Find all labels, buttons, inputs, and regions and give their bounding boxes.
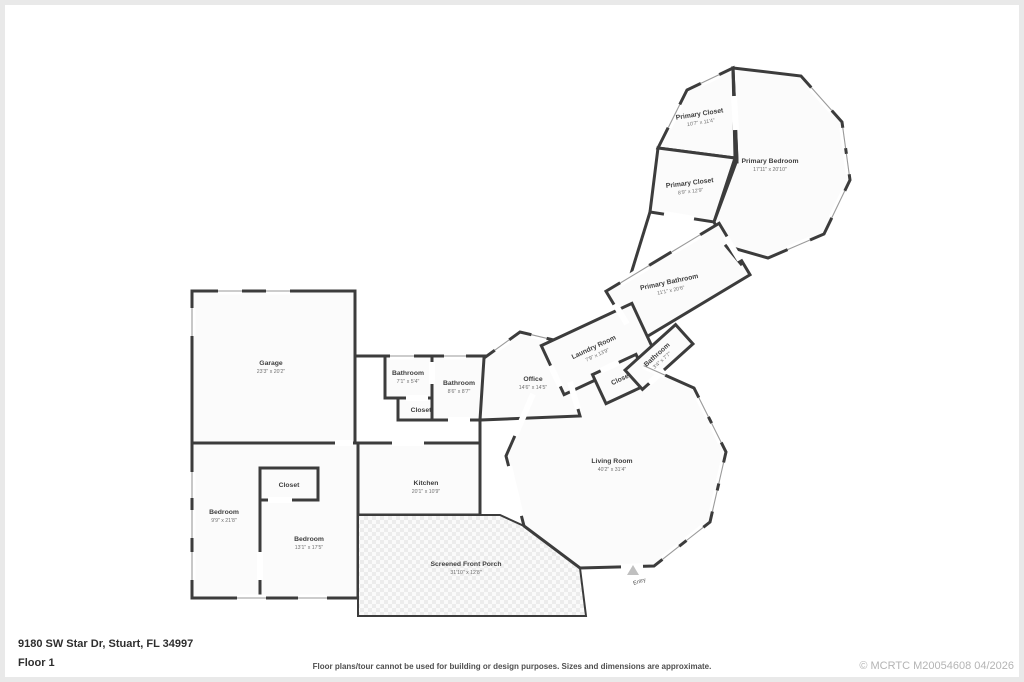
svg-text:Bathroom: Bathroom: [443, 380, 475, 387]
svg-text:Garage: Garage: [259, 360, 283, 367]
svg-text:7'1" x 5'4": 7'1" x 5'4": [397, 379, 420, 385]
svg-text:13'1" x 17'5": 13'1" x 17'5": [295, 545, 324, 551]
kitchen-shape: [358, 443, 480, 515]
svg-text:Closet: Closet: [411, 407, 433, 414]
copyright-text: © MCRTC M20054608 04/2026: [859, 660, 1014, 672]
window: [846, 154, 849, 174]
garage-shape: [192, 291, 355, 443]
window: [531, 335, 546, 339]
floorplan-svg: Entry Garage 23'3" x 20'2" Bathroom 7'1"…: [0, 0, 1024, 682]
entry-label: Entry: [633, 577, 647, 587]
svg-text:Bedroom: Bedroom: [294, 536, 324, 543]
svg-text:Bathroom: Bathroom: [392, 370, 424, 377]
svg-text:Living Room: Living Room: [591, 458, 632, 465]
svg-text:20'1" x 10'9": 20'1" x 10'9": [412, 489, 441, 495]
svg-text:31'10" x 12'8": 31'10" x 12'8": [450, 570, 481, 576]
room-shapes: [192, 68, 850, 616]
svg-text:Screened Front Porch: Screened Front Porch: [430, 561, 501, 568]
svg-text:23'3" x 20'2": 23'3" x 20'2": [257, 369, 286, 375]
svg-text:17'11" x 20'10": 17'11" x 20'10": [753, 167, 787, 173]
svg-text:40'2" x 31'4": 40'2" x 31'4": [598, 467, 627, 473]
room-label-bedroom-closet: Closet: [279, 482, 301, 489]
svg-text:8'6" x 8'7": 8'6" x 8'7": [448, 389, 471, 395]
svg-text:Kitchen: Kitchen: [414, 480, 439, 487]
svg-text:Bedroom: Bedroom: [209, 509, 239, 516]
room-label-hall-closet: Closet: [411, 407, 433, 414]
window: [719, 463, 724, 484]
property-address: 9180 SW Star Dr, Stuart, FL 34997: [18, 638, 193, 650]
window: [843, 128, 846, 148]
svg-text:Closet: Closet: [279, 482, 301, 489]
svg-text:Primary Bedroom: Primary Bedroom: [741, 158, 798, 165]
window: [712, 491, 717, 512]
svg-text:14'6" x 14'5": 14'6" x 14'5": [519, 385, 548, 391]
svg-text:Office: Office: [523, 376, 542, 383]
hall-bathroom-shape: [385, 356, 432, 398]
svg-text:9'9" x 21'8": 9'9" x 21'8": [211, 518, 237, 524]
